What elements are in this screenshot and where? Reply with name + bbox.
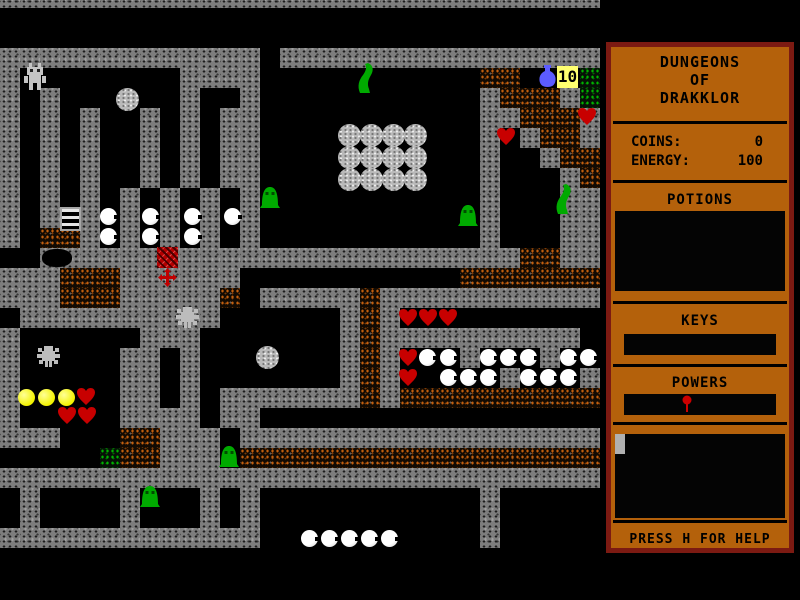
wall-tile (140, 48, 160, 68)
wall-tile (200, 308, 220, 328)
sprite-pearl (184, 228, 201, 245)
wall-tile (240, 188, 260, 208)
wall-tile (140, 148, 160, 168)
wall-tile (560, 288, 580, 308)
wall-tile (140, 388, 160, 408)
wall-tile (240, 388, 260, 408)
wall-tile (60, 468, 80, 488)
sprite-heart (77, 406, 97, 425)
dirt-tile (120, 428, 140, 448)
wall-tile (160, 528, 180, 548)
wall-tile (560, 0, 580, 8)
dirt-tile (460, 268, 480, 288)
wall-tile (180, 268, 200, 288)
wall-tile (220, 108, 240, 128)
wall-tile (300, 288, 320, 308)
wall-tile (380, 428, 400, 448)
sprite-boulder (404, 146, 427, 169)
sprite-heart (418, 308, 438, 327)
wall-tile (120, 308, 140, 328)
wall-tile (140, 308, 160, 328)
wall-tile (180, 88, 200, 108)
wall-tile (0, 348, 20, 368)
wall-tile (420, 288, 440, 308)
wall-tile (340, 428, 360, 448)
wall-tile (340, 248, 360, 268)
wall-tile (360, 428, 380, 448)
wall-tile (560, 428, 580, 448)
sprite-pearl (381, 530, 398, 547)
sprite-heart (496, 127, 516, 146)
wall-tile (0, 288, 20, 308)
wall-tile (540, 0, 560, 8)
wall-tile (120, 488, 140, 508)
dirt-tile (540, 108, 560, 128)
wall-tile (560, 468, 580, 488)
wall-tile (40, 208, 60, 228)
wall-tile (280, 388, 300, 408)
wall-tile (500, 428, 520, 448)
wall-tile (80, 208, 100, 228)
dirt-tile (60, 228, 80, 248)
wall-tile (160, 48, 180, 68)
wall-tile (120, 208, 140, 228)
moss-tile (580, 68, 600, 88)
dirt-tile (480, 268, 500, 288)
wall-tile (40, 188, 60, 208)
wall-tile (460, 0, 480, 8)
wall-tile (520, 288, 540, 308)
dirt-tile (580, 448, 600, 468)
wall-tile (240, 508, 260, 528)
sprite-heart (57, 406, 77, 425)
wall-tile (80, 48, 100, 68)
wall-tile (200, 48, 220, 68)
wall-tile (0, 128, 20, 148)
wall-tile (100, 528, 120, 548)
dirt-tile (100, 288, 120, 308)
dirt-tile (260, 448, 280, 468)
wall-tile (480, 288, 500, 308)
wall-tile (300, 388, 320, 408)
wall-tile (200, 428, 220, 448)
wall-tile (420, 0, 440, 8)
wall-tile (220, 48, 240, 68)
wall-tile (80, 128, 100, 148)
wall-tile (140, 288, 160, 308)
wall-tile (140, 108, 160, 128)
wall-tile (200, 508, 220, 528)
wall-tile (240, 488, 260, 508)
wall-tile (580, 468, 600, 488)
dirt-tile (460, 388, 480, 408)
wall-tile (580, 288, 600, 308)
divider (613, 301, 787, 304)
sprite-worm (553, 183, 575, 215)
sprite-pearl (361, 530, 378, 547)
wall-tile (40, 0, 60, 8)
wall-tile (280, 48, 300, 68)
wall-tile (520, 128, 540, 148)
dirt-tile (300, 448, 320, 468)
help-text: PRESS H FOR HELP (611, 532, 789, 547)
wall-tile (160, 468, 180, 488)
wall-tile (500, 328, 520, 348)
wall-tile (100, 0, 120, 8)
wall-tile (380, 248, 400, 268)
wall-tile (360, 0, 380, 8)
dirt-tile (540, 388, 560, 408)
sprite-cross (157, 267, 178, 288)
wall-tile (140, 128, 160, 148)
wall-tile (0, 268, 20, 288)
wall-tile (340, 388, 360, 408)
sprite-yellow (18, 389, 35, 406)
dirt-tile (60, 268, 80, 288)
sprite-pearl (520, 369, 537, 386)
dirt-tile (520, 88, 540, 108)
wall-tile (520, 48, 540, 68)
dirt-tile (360, 308, 380, 328)
dirt-tile (360, 288, 380, 308)
wall-tile (240, 88, 260, 108)
coins-label: COINS: (631, 133, 682, 152)
dirt-tile (500, 68, 520, 88)
sprite-pearl (460, 369, 477, 386)
wall-tile (40, 468, 60, 488)
wall-tile (240, 128, 260, 148)
wall-tile (220, 408, 240, 428)
wall-tile (260, 248, 280, 268)
dirt-tile (580, 388, 600, 408)
wall-tile (160, 448, 180, 468)
wall-tile (20, 528, 40, 548)
wall-tile (120, 248, 140, 268)
wall-tile (0, 368, 20, 388)
wall-tile (580, 0, 600, 8)
wall-tile (240, 428, 260, 448)
wall-tile (60, 48, 80, 68)
game-map-viewport[interactable]: 10 (0, 0, 600, 600)
wall-tile (80, 528, 100, 548)
wall-tile (0, 228, 20, 248)
wall-tile (380, 368, 400, 388)
wall-tile (240, 168, 260, 188)
moss-tile (580, 88, 600, 108)
sprite-gumdrop (219, 443, 239, 469)
sprite-pearl (540, 369, 557, 386)
energy-label: ENERGY: (631, 152, 690, 171)
wall-tile (520, 328, 540, 348)
dirt-tile (60, 288, 80, 308)
dirt-tile (540, 448, 560, 468)
wall-tile (400, 328, 420, 348)
wall-tile (340, 0, 360, 8)
sprite-pearl (560, 369, 577, 386)
dirt-tile (540, 248, 560, 268)
power-balloon-icon (681, 395, 693, 418)
wall-tile (180, 248, 200, 268)
wall-tile (0, 188, 20, 208)
wall-tile (240, 68, 260, 88)
wall-tile (160, 228, 180, 248)
dirt-tile (420, 388, 440, 408)
dirt-tile (580, 168, 600, 188)
wall-tile (0, 48, 20, 68)
keys-label: KEYS (611, 313, 789, 329)
sprite-boulder (338, 146, 361, 169)
divider (613, 422, 787, 425)
wall-tile (140, 368, 160, 388)
dirt-tile (440, 448, 460, 468)
wall-tile (200, 468, 220, 488)
wall-tile (300, 428, 320, 448)
wall-tile (480, 328, 500, 348)
wall-tile (40, 148, 60, 168)
potions-box (615, 211, 785, 291)
dirt-tile (500, 268, 520, 288)
wall-tile (440, 0, 460, 8)
sprite-heart (76, 387, 96, 406)
wall-tile (0, 428, 20, 448)
wall-tile (100, 468, 120, 488)
wall-tile (80, 0, 100, 8)
wall-tile (540, 148, 560, 168)
wall-tile (200, 528, 220, 548)
wall-tile (180, 68, 200, 88)
wall-tile (120, 188, 140, 208)
wall-tile (340, 308, 360, 328)
dirt-tile (140, 428, 160, 448)
wall-tile (280, 468, 300, 488)
sprite-pearl (321, 530, 338, 547)
wall-tile (120, 368, 140, 388)
wall-tile (40, 308, 60, 328)
sprite-heart (577, 107, 597, 126)
sprite-boulder (338, 168, 361, 191)
wall-tile (200, 488, 220, 508)
sprite-pearl (480, 349, 497, 366)
wall-tile (80, 148, 100, 168)
wall-tile (560, 328, 580, 348)
sprite-boulder (382, 168, 405, 191)
wall-tile (520, 428, 540, 448)
wall-tile (200, 268, 220, 288)
wall-tile (120, 0, 140, 8)
wall-tile (220, 148, 240, 168)
wall-tile (80, 108, 100, 128)
wall-tile (0, 328, 20, 348)
wall-tile (480, 0, 500, 8)
wall-tile (0, 148, 20, 168)
wall-tile (300, 48, 320, 68)
wall-tile (180, 408, 200, 428)
wall-tile (0, 168, 20, 188)
dirt-tile (400, 448, 420, 468)
wall-tile (120, 48, 140, 68)
wall-tile (480, 168, 500, 188)
sprite-pearl (301, 530, 318, 547)
wall-tile (440, 248, 460, 268)
wall-tile (240, 228, 260, 248)
sprite-blob (42, 249, 72, 267)
wall-tile (420, 48, 440, 68)
wall-tile (460, 328, 480, 348)
wall-tile (40, 288, 60, 308)
wall-tile (460, 348, 480, 368)
wall-tile (140, 168, 160, 188)
dirt-tile (520, 448, 540, 468)
wall-tile (480, 188, 500, 208)
sprite-pearl (142, 208, 159, 225)
wall-tile (480, 148, 500, 168)
wall-tile (160, 188, 180, 208)
energy-row: ENERGY: 100 (611, 152, 789, 171)
wall-tile (420, 248, 440, 268)
powers-label: POWERS (611, 375, 789, 391)
wall-tile (240, 0, 260, 8)
dirt-tile (360, 368, 380, 388)
wall-tile (500, 248, 520, 268)
sprite-heart (398, 308, 418, 327)
wall-tile (0, 468, 20, 488)
dirt-tile (480, 388, 500, 408)
wall-tile (540, 468, 560, 488)
wall-tile (120, 408, 140, 428)
sprite-spider (36, 344, 61, 368)
wall-tile (520, 0, 540, 8)
wall-tile (240, 408, 260, 428)
wall-tile (0, 108, 20, 128)
wall-tile (20, 468, 40, 488)
wall-tile (120, 468, 140, 488)
wall-tile (540, 328, 560, 348)
dirt-tile (360, 388, 380, 408)
dirt-tile (40, 228, 60, 248)
wall-tile (580, 48, 600, 68)
wall-tile (220, 528, 240, 548)
dirt-tile (440, 388, 460, 408)
wall-tile (40, 108, 60, 128)
wall-tile (80, 308, 100, 328)
wall-tile (240, 528, 260, 548)
wall-tile (260, 428, 280, 448)
wall-tile (100, 308, 120, 328)
game-title-line2: OF (611, 71, 789, 89)
dirt-tile (360, 328, 380, 348)
wall-tile (460, 248, 480, 268)
wall-tile (260, 0, 280, 8)
wall-tile (40, 168, 60, 188)
dirt-tile (560, 448, 580, 468)
wall-tile (500, 288, 520, 308)
wall-tile (20, 488, 40, 508)
wall-tile (200, 0, 220, 8)
wall-tile (480, 508, 500, 528)
dirt-tile (580, 268, 600, 288)
wall-tile (500, 368, 520, 388)
wall-tile (580, 208, 600, 228)
divider (613, 364, 787, 367)
wall-tile (20, 0, 40, 8)
dirt-tile (360, 448, 380, 468)
dirt-tile (380, 448, 400, 468)
wall-tile (380, 0, 400, 8)
sprite-pearl (100, 208, 117, 225)
wall-tile (380, 328, 400, 348)
wall-tile (380, 388, 400, 408)
wall-tile (320, 288, 340, 308)
wall-tile (180, 148, 200, 168)
wall-tile (80, 188, 100, 208)
sprite-pearl (580, 349, 597, 366)
wall-tile (560, 228, 580, 248)
wall-tile (500, 48, 520, 68)
wall-tile (200, 188, 220, 208)
sprite-pearl (560, 349, 577, 366)
wall-tile (180, 468, 200, 488)
sprite-pearl (440, 349, 457, 366)
wall-tile (480, 248, 500, 268)
wall-tile (480, 108, 500, 128)
sprite-gumdrop (140, 483, 160, 509)
wall-tile (520, 468, 540, 488)
wall-tile (580, 228, 600, 248)
wall-tile (320, 468, 340, 488)
wall-tile (420, 468, 440, 488)
wall-tile (260, 468, 280, 488)
wall-tile (400, 0, 420, 8)
dirt-tile (480, 448, 500, 468)
dirt-tile (100, 268, 120, 288)
sprite-pearl (419, 349, 436, 366)
sprite-boulder (360, 146, 383, 169)
wall-tile (160, 408, 180, 428)
wall-tile (300, 468, 320, 488)
inventory-item-chip (615, 434, 625, 454)
wall-tile (400, 248, 420, 268)
dirt-tile (520, 268, 540, 288)
wall-tile (360, 468, 380, 488)
wall-tile (200, 228, 220, 248)
sprite-ladder (60, 207, 81, 231)
wall-tile (500, 108, 520, 128)
wall-tile (140, 328, 160, 348)
status-panel: DUNGEONS OF DRAKKLOR COINS: 0 ENERGY: 10… (606, 42, 794, 553)
powers-box (624, 394, 776, 415)
wall-tile (240, 48, 260, 68)
wall-tile (160, 328, 180, 348)
wall-tile (380, 348, 400, 368)
wall-tile (580, 428, 600, 448)
moss-tile (100, 448, 120, 468)
sprite-worm (355, 62, 377, 94)
wall-tile (0, 208, 20, 228)
wall-tile (40, 128, 60, 148)
wall-tile (140, 0, 160, 8)
dirt-tile (540, 268, 560, 288)
wall-tile (220, 168, 240, 188)
stats-block: COINS: 0 ENERGY: 100 (611, 133, 789, 171)
wall-tile (220, 468, 240, 488)
wall-tile (180, 348, 200, 368)
wall-tile (120, 268, 140, 288)
wall-tile (480, 468, 500, 488)
wall-tile (340, 348, 360, 368)
dirt-tile (280, 448, 300, 468)
wall-tile (420, 328, 440, 348)
wall-tile (180, 428, 200, 448)
